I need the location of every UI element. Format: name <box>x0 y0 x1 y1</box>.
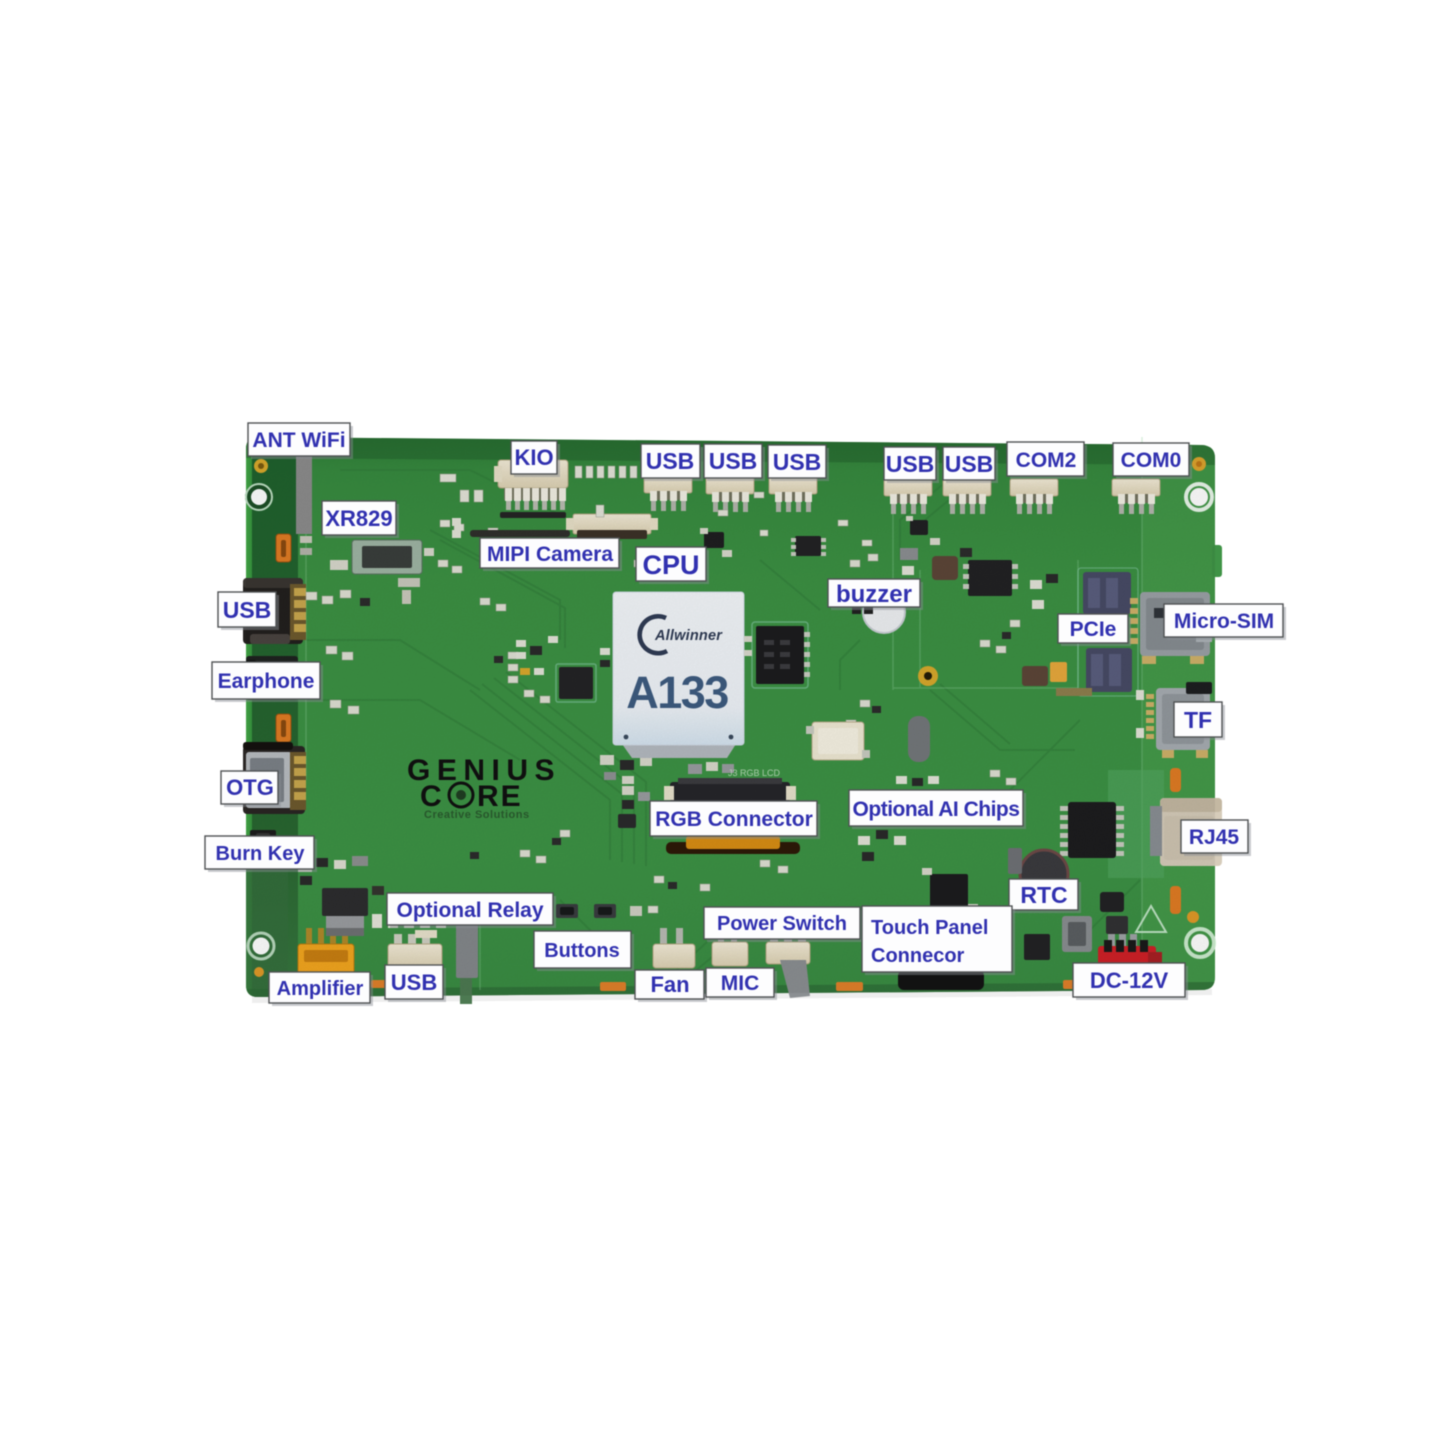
svg-text:TF: TF <box>1184 707 1212 733</box>
svg-text:Power Switch: Power Switch <box>717 913 847 935</box>
svg-text:Earphone: Earphone <box>218 670 315 693</box>
svg-text:USB: USB <box>223 597 272 623</box>
svg-text:MIC: MIC <box>721 972 760 995</box>
svg-text:USB: USB <box>646 448 695 474</box>
svg-text:RGB Connector: RGB Connector <box>655 808 813 831</box>
svg-text:OTG: OTG <box>226 775 274 800</box>
svg-text:Micro-SIM: Micro-SIM <box>1174 610 1274 633</box>
svg-text:Fan: Fan <box>650 972 689 997</box>
svg-text:Burn Key: Burn Key <box>216 843 306 865</box>
svg-text:USB: USB <box>886 451 935 477</box>
svg-text:USB: USB <box>709 448 758 474</box>
svg-text:Optional Relay: Optional Relay <box>396 899 543 922</box>
svg-text:PCIe: PCIe <box>1070 618 1117 641</box>
svg-text:Connecor: Connecor <box>871 945 965 967</box>
svg-text:XR829: XR829 <box>325 506 392 531</box>
svg-text:DC-12V: DC-12V <box>1090 968 1169 993</box>
svg-text:Amplifier: Amplifier <box>277 978 364 1000</box>
svg-text:COM0: COM0 <box>1121 449 1182 472</box>
svg-text:USB: USB <box>773 449 822 475</box>
svg-text:RJ45: RJ45 <box>1189 826 1240 849</box>
svg-text:CPU: CPU <box>642 550 699 580</box>
svg-text:MIPI Camera: MIPI Camera <box>487 543 613 566</box>
svg-text:USB: USB <box>391 970 437 995</box>
svg-text:Optional AI Chips: Optional AI Chips <box>853 798 1020 821</box>
svg-text:Buttons: Buttons <box>544 940 620 962</box>
svg-text:buzzer: buzzer <box>836 581 912 608</box>
svg-text:RTC: RTC <box>1020 882 1067 908</box>
svg-text:Touch Panel: Touch Panel <box>871 917 988 939</box>
svg-text:ANT WiFi: ANT WiFi <box>252 429 345 452</box>
svg-text:COM2: COM2 <box>1016 449 1077 472</box>
svg-text:KIO: KIO <box>514 445 553 470</box>
svg-text:USB: USB <box>945 451 994 477</box>
